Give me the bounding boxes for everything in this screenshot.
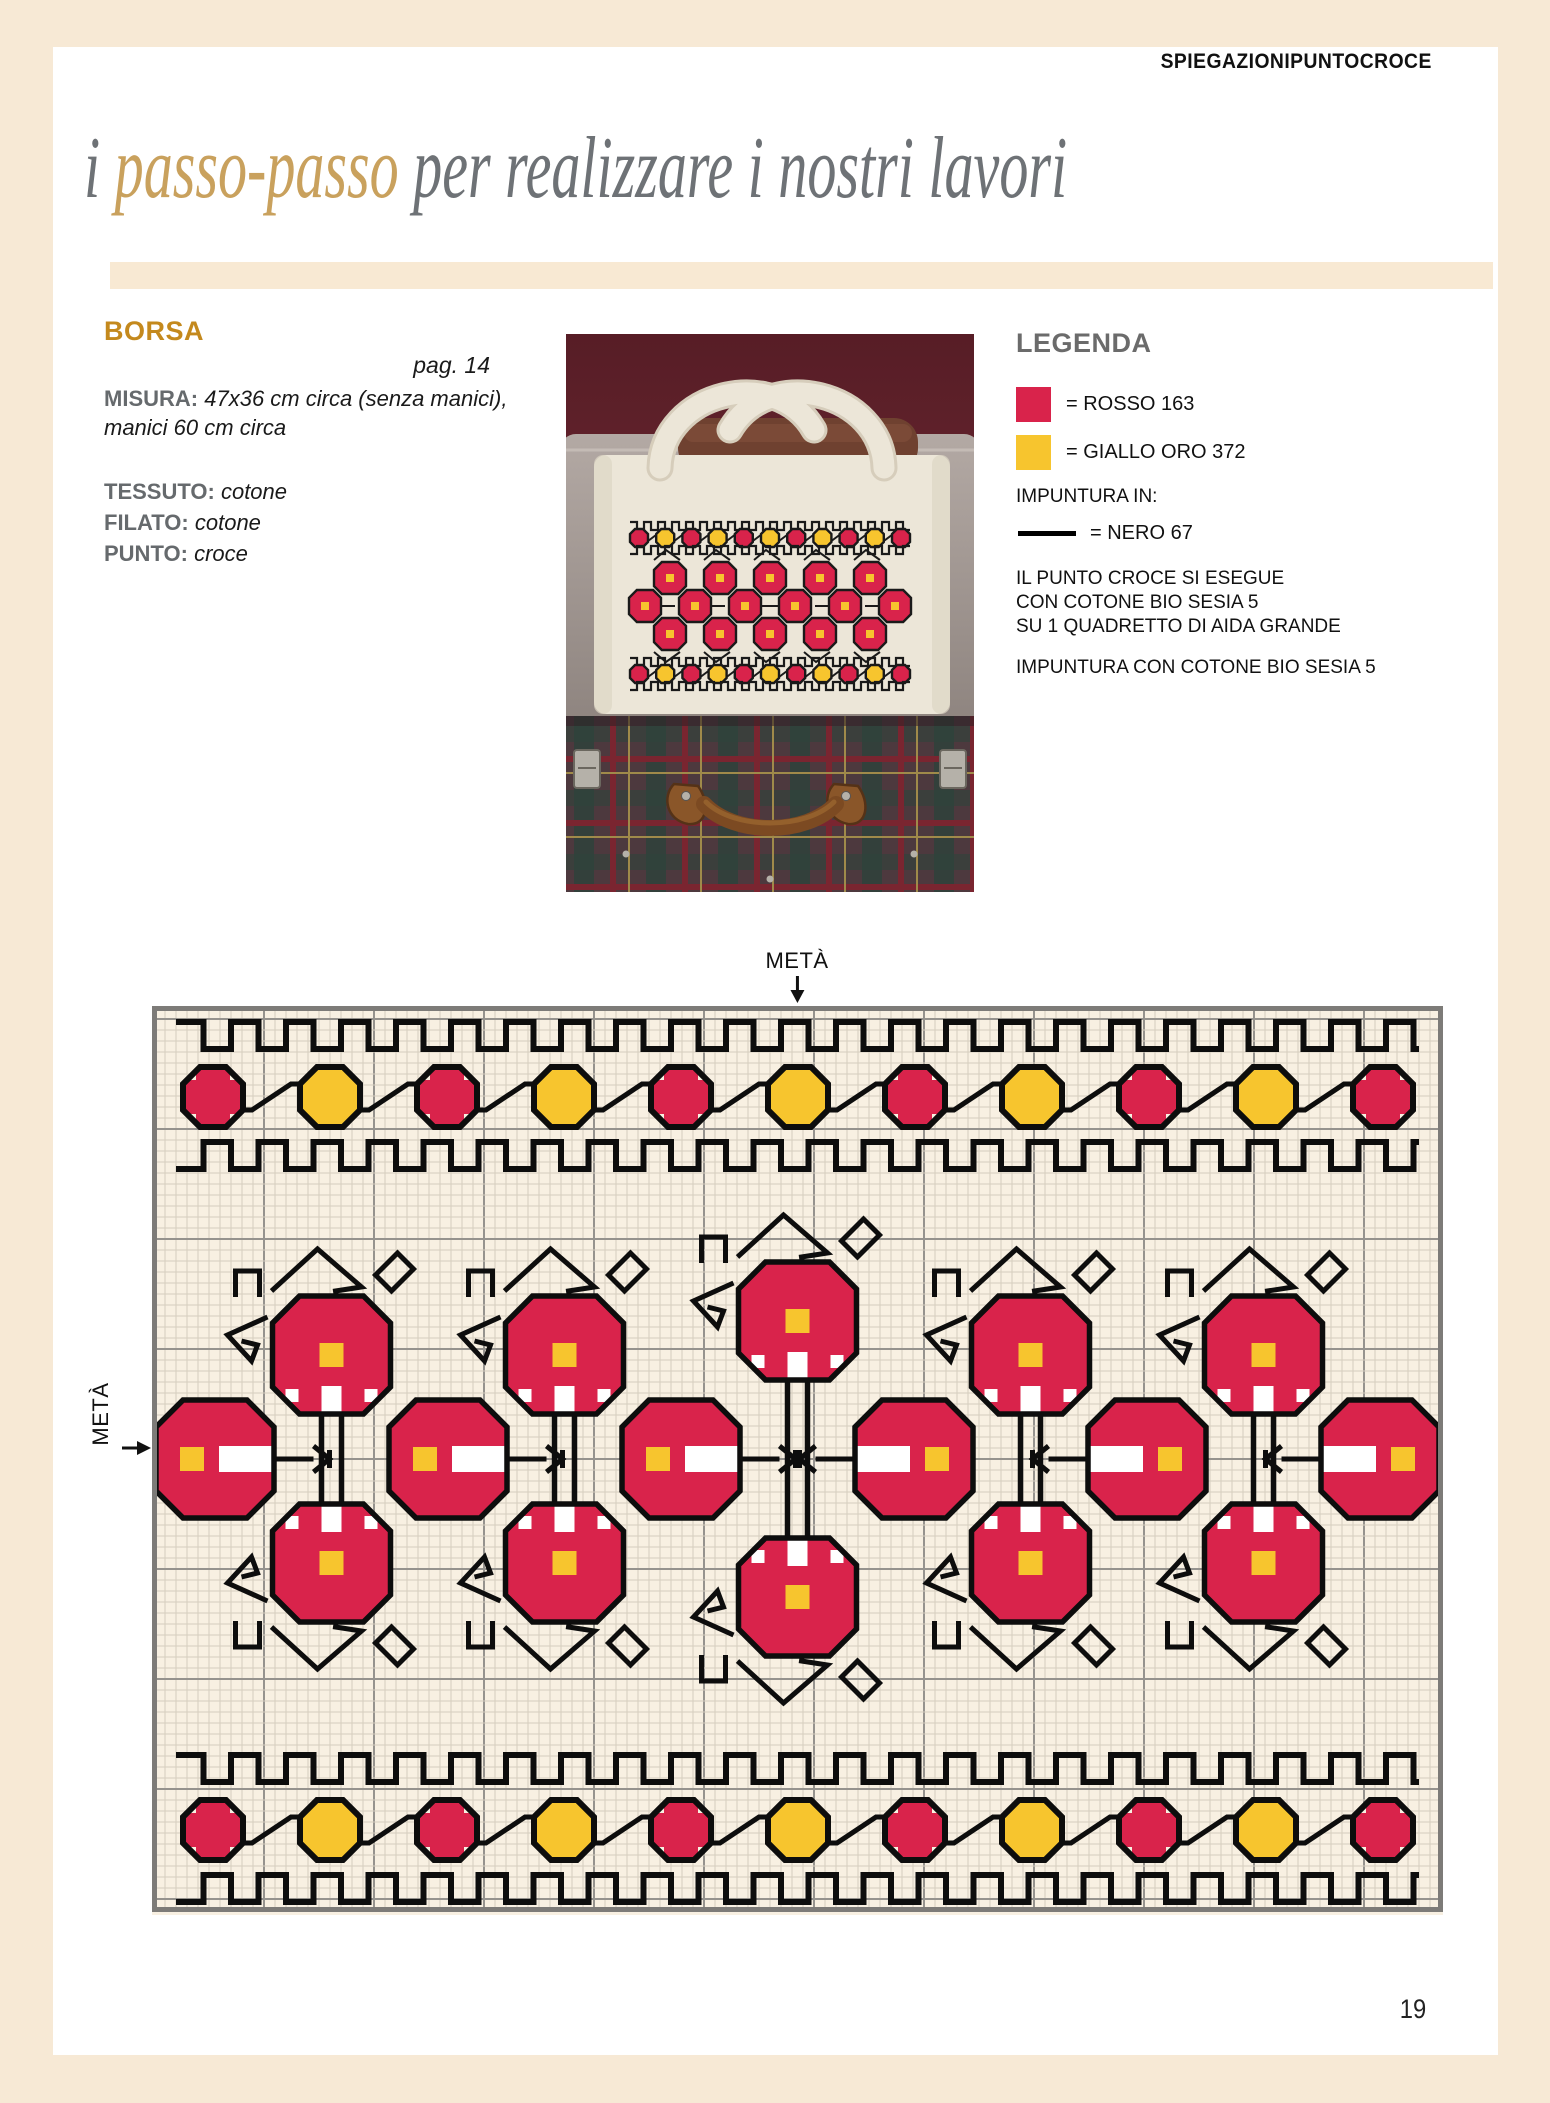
spec-label: TESSUTO: — [104, 479, 215, 504]
title-prefix: i — [84, 120, 115, 217]
meta-top-text: METÀ — [765, 948, 828, 974]
kicker-bold: SPIEGAZIONI — [1161, 50, 1291, 73]
page-reference: pag. 14 — [300, 352, 490, 379]
legend-notes: IL PUNTO CROCE SI ESEGUE CON COTONE BIO … — [1016, 567, 1436, 639]
page-title: i passo-passo per realizzare i nostri la… — [84, 118, 1067, 219]
legend-panel: LEGENDA = ROSSO 163 = GIALLO ORO 372 IMP… — [1016, 328, 1436, 679]
project-name: BORSA — [104, 316, 204, 347]
note-line: IL PUNTO CROCE SI ESEGUE — [1016, 567, 1436, 591]
spec-punto: PUNTO: croce — [104, 539, 524, 568]
title-divider-bar — [110, 262, 1493, 289]
kicker-light: PUNTOCROCE — [1290, 50, 1432, 73]
legend-stitch-heading: IMPUNTURA IN: — [1016, 486, 1436, 508]
spec-value: cotone — [195, 510, 261, 535]
color-swatch-rosso — [1016, 387, 1051, 422]
spec-gap — [104, 444, 524, 477]
spec-label: PUNTO: — [104, 541, 188, 566]
legend-label: = GIALLO ORO 372 — [1066, 441, 1246, 464]
spec-misura: MISURA: 47x36 cm circa (senza manici), m… — [104, 384, 524, 442]
meta-label-top: METÀ — [765, 948, 828, 1004]
color-swatch-giallo — [1016, 435, 1051, 470]
black-line-swatch — [1018, 531, 1076, 536]
legend-row-giallo: = GIALLO ORO 372 — [1016, 435, 1436, 470]
page-number: 19 — [1400, 1994, 1426, 2025]
legend-row-nero: = NERO 67 — [1016, 522, 1436, 545]
title-rest: per realizzare i nostri lavori — [399, 120, 1067, 217]
spec-label: FILATO: — [104, 510, 189, 535]
arrow-down-icon — [789, 976, 805, 1004]
spec-value: cotone — [221, 479, 287, 504]
bag-photo — [566, 334, 974, 892]
title-accent: passo-passo — [115, 120, 399, 217]
spec-value: croce — [194, 541, 248, 566]
legend-row-rosso: = ROSSO 163 — [1016, 387, 1436, 422]
spec-tessuto: TESSUTO: cotone — [104, 477, 524, 506]
arrow-right-icon — [122, 1440, 152, 1456]
note-line: CON COTONE BIO SESIA 5 — [1016, 591, 1436, 615]
section-kicker: SPIEGAZIONIPUNTOCROCE — [1161, 50, 1432, 74]
note-line: SU 1 QUADRETTO DI AIDA GRANDE — [1016, 615, 1436, 639]
meta-left-text: METÀ — [88, 1382, 113, 1445]
project-specs: MISURA: 47x36 cm circa (senza manici), m… — [104, 384, 524, 570]
spec-filato: FILATO: cotone — [104, 508, 524, 537]
cross-stitch-chart — [152, 1006, 1443, 1915]
legend-title: LEGENDA — [1016, 328, 1436, 359]
legend-note2: IMPUNTURA CON COTONE BIO SESIA 5 — [1016, 657, 1436, 679]
spec-label: MISURA: — [104, 386, 198, 411]
magazine-page: SPIEGAZIONIPUNTOCROCE i passo-passo per … — [0, 0, 1550, 2103]
legend-label: = ROSSO 163 — [1066, 393, 1194, 416]
meta-label-left: METÀ — [88, 1354, 112, 1474]
legend-label: = NERO 67 — [1090, 522, 1193, 545]
